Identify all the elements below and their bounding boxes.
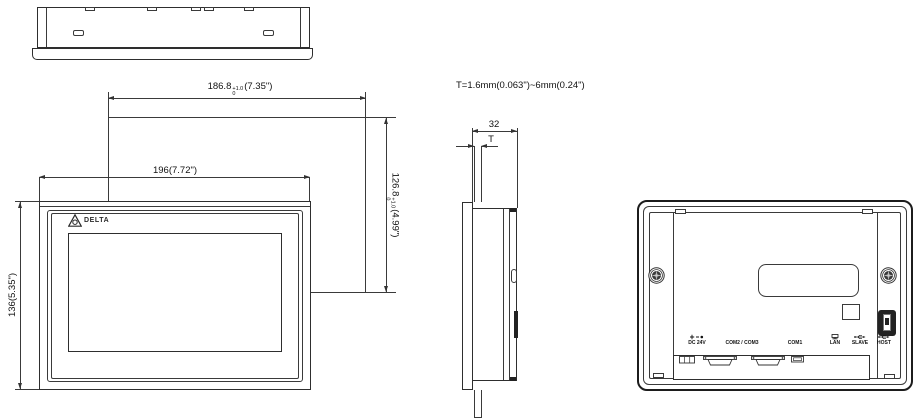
mounting-wall xyxy=(481,146,482,202)
port-label-com2-com3: COM2 / COM3 xyxy=(725,341,758,346)
small-cover xyxy=(842,304,860,320)
vent-notch xyxy=(244,7,254,11)
mounting-slot xyxy=(263,30,274,36)
dimension-depth-label: 32 xyxy=(489,120,500,130)
dimension-cutout-width-label: 186.8+1.00(7.35") xyxy=(208,82,273,97)
clip-slot xyxy=(862,209,873,214)
screw-icon xyxy=(648,267,665,284)
small-connector xyxy=(791,356,804,363)
port-label-lan: LAN xyxy=(830,341,840,346)
top-view-body xyxy=(37,7,310,48)
mounting-wall xyxy=(481,390,482,418)
dimension-panel-thickness-label: T xyxy=(488,135,494,145)
vent-notch xyxy=(85,7,95,11)
top-view-bezel xyxy=(32,48,313,60)
vent-notch xyxy=(191,7,201,11)
dimension-outer-height-label: 136(5.35") xyxy=(8,273,18,317)
mounting-wall xyxy=(474,390,475,418)
clip-slot xyxy=(884,374,895,379)
port-label-host: HOST xyxy=(877,341,891,346)
mounting-slot xyxy=(73,30,84,36)
terminal-block-connector xyxy=(679,356,695,364)
delta-logo: DELTA xyxy=(68,214,109,227)
display-screen xyxy=(68,233,282,352)
dsub-connector xyxy=(703,356,737,366)
vent-notch xyxy=(147,7,157,11)
brand-text: DELTA xyxy=(84,217,109,224)
delta-triangle-icon xyxy=(68,214,82,227)
mounting-wall xyxy=(474,146,475,202)
panel-thickness-note: T=1.6mm(0.063")~6mm(0.24") xyxy=(456,80,585,91)
side-body xyxy=(472,208,517,381)
vent-notch xyxy=(204,7,214,11)
dsub-connector xyxy=(751,356,785,366)
side-usb-port xyxy=(511,269,517,283)
clip-slot xyxy=(653,373,664,378)
port-label-slave: SLAVE xyxy=(852,341,868,346)
screw-icon xyxy=(880,267,897,284)
side-connector-strip xyxy=(514,311,518,338)
label-recess xyxy=(758,264,859,297)
clip-slot xyxy=(675,209,686,214)
port-label-dc24v: DC 24V xyxy=(688,341,706,346)
dimension-cutout-height-label: 126.8+1.00(4.99") xyxy=(385,173,400,238)
dimensional-drawing: DELTA 196(7.72") 136(5.35") xyxy=(0,0,920,420)
dimension-outer-width-label: 196(7.72") xyxy=(153,166,197,176)
port-label-com1: COM1 xyxy=(788,341,802,346)
